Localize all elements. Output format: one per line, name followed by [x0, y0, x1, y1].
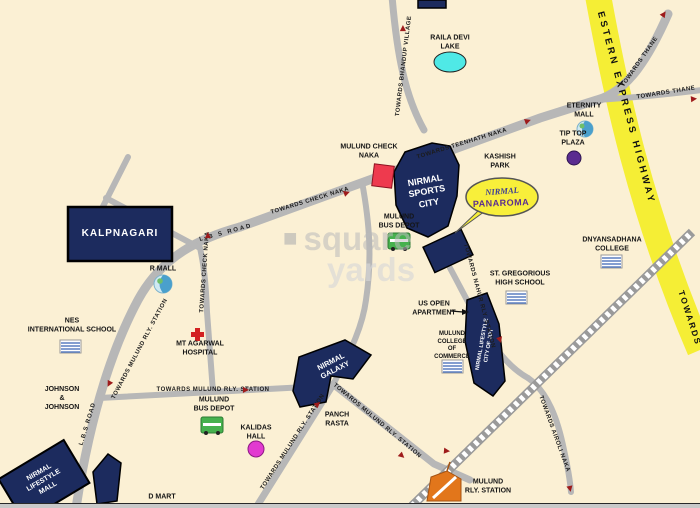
city-of-joy-building	[465, 293, 505, 396]
map-canvas	[0, 0, 700, 508]
nirmal-sports-city-building	[394, 143, 459, 237]
bottom-border-strip	[0, 503, 700, 508]
mulund-locality-map: RAILA DEVI LAKEETERNITY MALLTIP TOP PLAZ…	[0, 0, 700, 508]
nes-international-school-icon	[60, 340, 81, 353]
eternity-mall-icon	[577, 121, 593, 137]
mulund-bus-depot-south-icon	[201, 417, 223, 435]
mulund-college-of-commerce-icon	[442, 360, 463, 373]
nirmal-galaxy-building	[293, 340, 371, 407]
kalpnagari-building	[68, 207, 172, 261]
unlabeled-building	[93, 454, 121, 504]
dnyansadhana-college-icon	[601, 255, 622, 268]
nirmal-panaroma-callout	[455, 178, 538, 233]
road-airoli	[528, 378, 571, 492]
raila-devi-lake-icon	[434, 52, 466, 72]
tip-top-plaza-icon	[567, 151, 581, 165]
mulund-bus-depot-north-icon	[388, 233, 410, 251]
road-bhandup-north	[392, 0, 424, 130]
mt-agarwal-hospital-icon	[191, 328, 204, 341]
mulund-check-naka-icon	[372, 164, 395, 188]
buildings-layer	[0, 0, 505, 508]
r-mall-icon	[154, 275, 172, 293]
top-edge-building	[418, 0, 446, 8]
kalidas-hall-icon	[248, 441, 264, 457]
st-gregorious-high-school-icon	[506, 291, 527, 304]
road-r-mall	[200, 248, 213, 392]
